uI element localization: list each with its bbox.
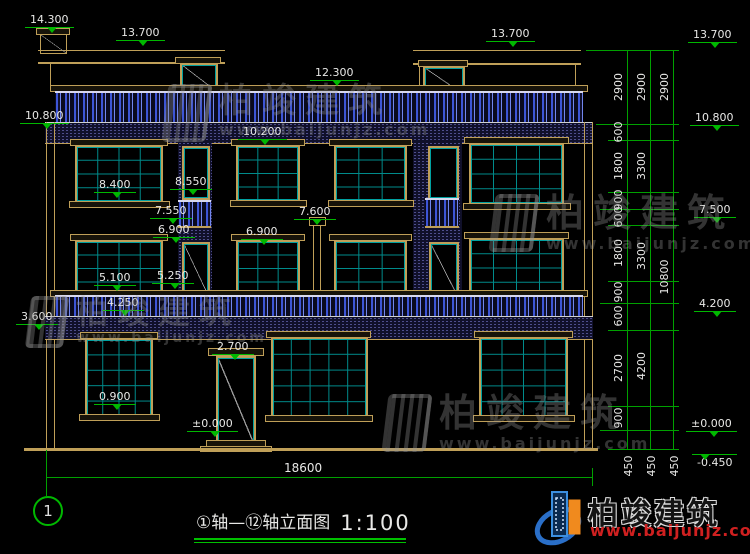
watermark-text: 柏竣建筑 [76, 296, 267, 330]
watermark-logo-icon [381, 394, 432, 452]
elevation-label: 7.600 [294, 206, 336, 220]
elevation-label: 13.700 [688, 29, 737, 43]
axis-leader [46, 450, 47, 496]
elevation-label: 12.300 [310, 67, 359, 81]
dim-label: 4200 [636, 344, 648, 388]
window [334, 145, 407, 202]
window [236, 145, 300, 202]
elevation-label: 6.900 [241, 226, 283, 240]
elevation-label: 10.800 [690, 112, 739, 126]
elevation-label: 4.200 [694, 298, 736, 312]
extension-line [586, 50, 679, 51]
dim-label: 450 [646, 451, 658, 481]
elevation-label: 7.550 [150, 205, 192, 219]
axis-bubble: 1 [33, 496, 63, 526]
elevation-label: ±0.000 [187, 418, 238, 432]
watermark: 柏竣建筑 www.baijunjz.com [165, 84, 430, 142]
elevation-label: -0.450 [692, 454, 737, 469]
elevation-drawing: 14.300 13.700 12.300 13.700 10.800 10.20… [0, 0, 750, 554]
title-underline [194, 538, 406, 540]
watermark-url: www.baijunjz.com [76, 330, 267, 346]
dim-label: 600 [613, 294, 625, 338]
left-wall-edge [54, 122, 55, 449]
window [236, 240, 300, 297]
window-sill [79, 414, 160, 421]
narrow-window [428, 146, 459, 200]
dim-label: 2900 [613, 65, 625, 109]
dim-label: 10800 [659, 255, 671, 299]
watermark-url: www.baijunjz.com [219, 120, 430, 139]
dim-label: 2900 [636, 65, 648, 109]
elevation-label: 8.550 [170, 176, 212, 190]
elevation-label: 13.700 [486, 28, 535, 42]
narrow-window [429, 242, 459, 297]
window-sill [265, 415, 373, 422]
dim-label: 2700 [613, 346, 625, 390]
dim-label: 2900 [659, 65, 671, 109]
juliet-balustrade [425, 198, 459, 228]
elevation-label: 5.250 [152, 270, 194, 284]
entry-door [216, 356, 256, 446]
elevation-label: 13.700 [116, 27, 165, 41]
dim-tick [592, 468, 593, 486]
watermark-url: www.baijunjz.com [439, 434, 650, 453]
total-width-label: 18600 [284, 461, 322, 475]
elevation-label: 8.400 [94, 179, 136, 193]
watermark: 柏竣建筑 www.baijunjz.com [492, 194, 750, 253]
brand-url: www.baijunjz.com [590, 521, 750, 540]
drawing-title: ①轴—⑫轴立面图 1:100 [196, 511, 411, 535]
elevation-label: 6.900 [153, 224, 195, 238]
window [271, 337, 368, 419]
left-wall-edge [46, 122, 47, 449]
extension-line [600, 303, 679, 304]
extension-line [596, 124, 679, 125]
title-underline [194, 542, 406, 543]
watermark-logo-icon [25, 296, 69, 348]
watermark: 柏竣建筑 www.baijunjz.com [28, 296, 267, 348]
watermark-text: 柏竣建筑 [219, 84, 430, 120]
elevation-label: 10.800 [20, 110, 69, 124]
elevation-label: 5.100 [94, 272, 136, 286]
window [334, 240, 407, 297]
dim-label: 450 [669, 451, 681, 481]
brand-logo-icon [534, 484, 590, 550]
elevation-label: ±0.000 [686, 418, 737, 432]
watermark-logo-icon [161, 84, 212, 142]
dim-label: 450 [623, 451, 635, 481]
watermark-logo-icon [488, 194, 539, 252]
title-text: ①轴—⑫轴立面图 [196, 511, 330, 535]
watermark-url: www.baijunjz.com [546, 234, 750, 253]
elevation-label: 14.300 [25, 14, 74, 28]
chimney [40, 34, 67, 54]
watermark-text: 柏竣建筑 [546, 194, 750, 234]
window-sill [328, 200, 414, 207]
title-scale: 1:100 [340, 511, 411, 535]
watermark: 柏竣建筑 www.baijunjz.com [385, 394, 650, 453]
elevation-label: 0.900 [94, 391, 136, 405]
watermark-text: 柏竣建筑 [439, 394, 650, 434]
total-width-dim-line [46, 477, 593, 478]
dim-label: 3300 [636, 144, 648, 188]
